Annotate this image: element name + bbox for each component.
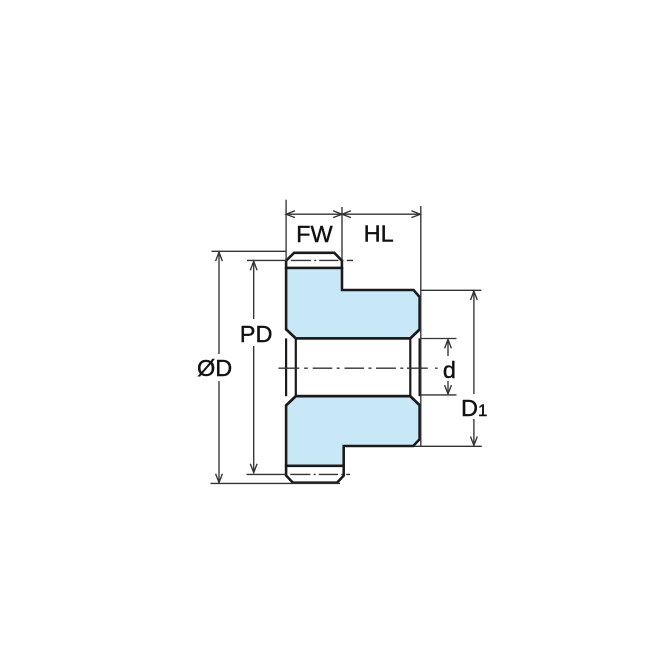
svg-text:FW: FW (296, 221, 333, 247)
svg-text:PD: PD (240, 321, 273, 347)
svg-text:d: d (443, 357, 456, 383)
svg-text:HL: HL (364, 221, 394, 247)
svg-text:ØD: ØD (197, 355, 232, 381)
